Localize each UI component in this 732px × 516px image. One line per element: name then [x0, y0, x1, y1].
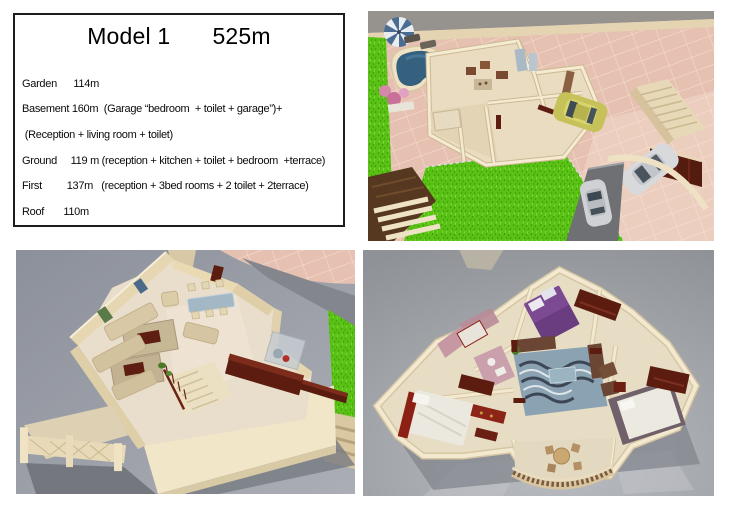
- brochure-page: Model 1 525m Garden 114m Basement 160m (…: [0, 0, 732, 516]
- render-bedroom-floor: [363, 250, 714, 496]
- model-name: Model 1: [87, 23, 170, 50]
- terrace-balcony: [512, 438, 613, 485]
- line-first: First 137m (reception + 3bed rooms + 2 t…: [22, 173, 341, 199]
- site-aerial-svg: [368, 11, 714, 241]
- render-living-floor: [16, 250, 355, 494]
- model-total-area: 525m: [212, 23, 270, 50]
- page-title: Model 1 525m: [15, 23, 343, 50]
- line-basement: Basement 160m (Garage “bedroom + toilet …: [22, 97, 341, 123]
- render-site-aerial: [368, 11, 714, 241]
- model-info-box: Model 1 525m Garden 114m Basement 160m (…: [13, 13, 345, 227]
- area-breakdown-list: Garden 114m Basement 160m (Garage “bedro…: [22, 71, 341, 225]
- line-basement-cont: (Reception + living room + toilet): [22, 122, 341, 148]
- line-garden: Garden 114m: [22, 71, 341, 97]
- bedroom-floor-svg: [363, 250, 714, 496]
- line-ground: Ground 119 m (reception + kitchen + toil…: [22, 148, 341, 174]
- line-roof: Roof 110m: [22, 199, 341, 225]
- living-floor-svg: [16, 250, 355, 494]
